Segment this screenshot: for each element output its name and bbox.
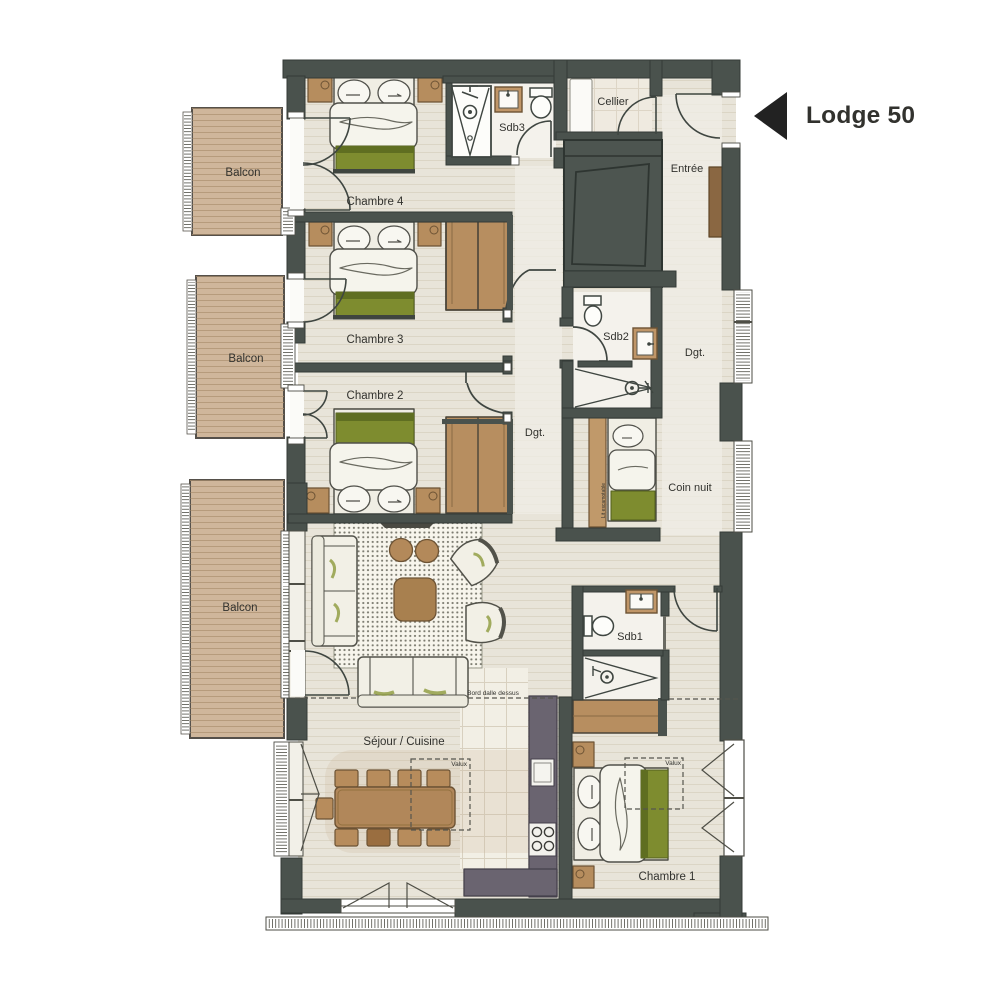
svg-text:Bord dalle dessus: Bord dalle dessus <box>467 690 519 697</box>
svg-text:Lodge 50: Lodge 50 <box>806 102 915 129</box>
svg-text:Dgt.: Dgt. <box>685 347 705 359</box>
svg-text:Lit escamotable: Lit escamotable <box>601 483 607 518</box>
svg-text:Chambre 3: Chambre 3 <box>347 334 404 346</box>
svg-text:Valux: Valux <box>665 760 682 767</box>
svg-text:Chambre 1: Chambre 1 <box>639 871 696 883</box>
svg-text:Sdb2: Sdb2 <box>603 331 629 343</box>
svg-text:Dgt.: Dgt. <box>525 427 545 439</box>
svg-text:Balcon: Balcon <box>228 353 263 365</box>
svg-text:Sdb3: Sdb3 <box>499 122 525 134</box>
svg-text:Balcon: Balcon <box>222 602 257 614</box>
svg-text:Valux: Valux <box>451 761 468 768</box>
svg-text:Sdb1: Sdb1 <box>617 631 643 643</box>
svg-text:Chambre 2: Chambre 2 <box>347 390 404 402</box>
svg-text:Chambre 4: Chambre 4 <box>347 196 404 208</box>
svg-text:Cellier: Cellier <box>597 96 629 108</box>
svg-text:Coin nuit: Coin nuit <box>668 482 711 494</box>
svg-text:Séjour / Cuisine: Séjour / Cuisine <box>363 736 444 748</box>
svg-text:Entrée: Entrée <box>671 163 703 175</box>
svg-text:Balcon: Balcon <box>225 167 260 179</box>
